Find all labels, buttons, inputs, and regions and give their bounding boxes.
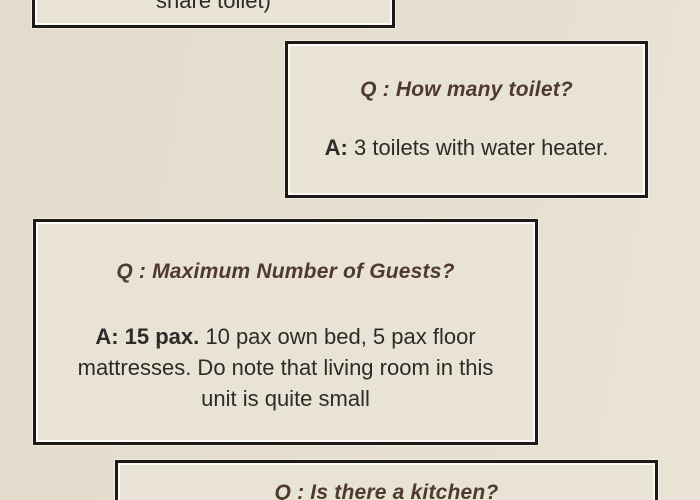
- question-text: Q : Is there a kitchen?: [275, 479, 499, 500]
- answer-prefix: A:: [325, 135, 348, 160]
- faq-card-how-many-toilet: Q : How many toilet? A: 3 toilets with w…: [285, 41, 648, 198]
- question-text: Q : How many toilet?: [360, 76, 573, 103]
- answer-text: A: 3 toilets with water heater.: [325, 132, 609, 163]
- answer-text-partial: share toilet): [156, 0, 271, 16]
- faq-card-share-toilet: share toilet): [32, 0, 395, 28]
- faq-graphic: share toilet) Q : How many toilet? A: 3 …: [0, 0, 700, 500]
- question-text: Q : Maximum Number of Guests?: [116, 258, 454, 285]
- answer-body: 3 toilets with water heater.: [348, 135, 608, 160]
- faq-card-max-guests: Q : Maximum Number of Guests? A: 15 pax.…: [33, 219, 538, 445]
- answer-text: A: 15 pax. 10 pax own bed, 5 pax floor m…: [71, 321, 501, 414]
- answer-prefix: A: 15 pax.: [95, 324, 199, 349]
- faq-card-kitchen: Q : Is there a kitchen?: [115, 460, 658, 500]
